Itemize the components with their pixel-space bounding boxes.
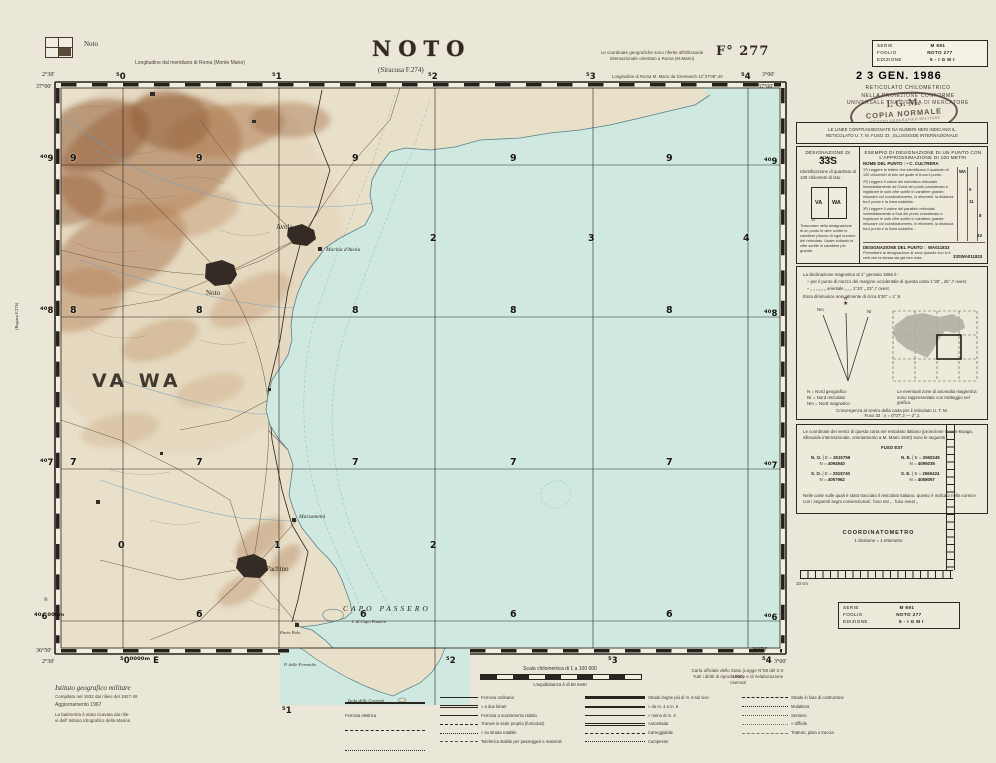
grid-bottom-0: ⁵0⁰⁰⁰⁰ᵐ E <box>120 656 159 666</box>
edge-top-left-lon: 2°30' <box>42 72 54 78</box>
credit-compilato: Compilato nel 1932 dai rilievi del 1927-… <box>55 694 205 700</box>
sheet-subtitle: (Siracusa F.274) <box>378 66 424 74</box>
grid-number: 8 <box>352 305 359 316</box>
railway-symbol-3 <box>345 750 425 751</box>
edge-bottom-left-lon: 2°30' <box>42 659 54 665</box>
corner-no: N. O. { E = 2515759 N = 4094940 <box>811 455 850 466</box>
convergenza-2: Fuso 33 : γ = 0°07',2 — 2°,1 <box>803 413 981 419</box>
ruler-10cm-label: 10 cm <box>796 581 808 587</box>
map-sheet: Noto NOTO (Siracusa F.274) Longitudine d… <box>0 0 996 763</box>
sheet-title: NOTO <box>372 36 471 61</box>
designation-divider <box>859 147 860 263</box>
zona-footnote: Trascurare nella designazione di un punt… <box>800 223 856 253</box>
grid-left-9: ⁴⁰9 <box>40 154 53 164</box>
legend-n: N = Nord geografico <box>807 389 846 395</box>
nm-label: Nm <box>817 307 824 313</box>
grid-top-3: ⁵3 <box>586 72 596 82</box>
edge-top-right-lon: 3°00' <box>762 72 774 78</box>
scale-equidistance: L'equidistanza è di 50 metri <box>480 682 640 687</box>
fuso-est: FUSO EST <box>797 445 987 451</box>
declination-box: La declinazione magnetica al 1° gennaio … <box>796 266 988 420</box>
corner-se: S. E. { E = 2560424 N = 4058057 <box>901 471 939 482</box>
grid-left-8: ⁴⁰8 <box>40 306 53 316</box>
edge-n-label: N <box>44 598 48 603</box>
edizione-value: 5 - I G M I <box>930 57 955 64</box>
grid-left-6: ⁴⁰6⁰⁰⁰ᵐ <box>34 612 64 622</box>
legend-sentieri: Strade in fase di costruzione Mulattiera… <box>742 694 892 738</box>
sheet-index-diagram <box>45 37 73 58</box>
credits-block: Istituto geografico militare Compilato n… <box>55 684 205 723</box>
label-marzamemi: Marzamemi <box>299 514 325 520</box>
val-0: 0 <box>969 187 971 193</box>
legend-railway-block: Ferrovia elettrica Limiti di Stato \u00b… <box>345 694 431 763</box>
edizione-label: EDIZIONE <box>877 57 902 64</box>
coordinatometro-sub: 1 divisione = 1 ettometro <box>796 538 961 544</box>
serie-value: M 691 <box>931 43 946 50</box>
grid-number: 6 <box>196 609 203 620</box>
grid-number: 9 <box>666 153 673 164</box>
credit-istituto: Istituto geografico militare <box>55 684 205 692</box>
square-wa: WA <box>832 200 841 207</box>
label-noto: Noto <box>206 289 220 297</box>
label-avola: Avola <box>276 223 293 231</box>
grid-number: 0 <box>118 540 125 551</box>
n-star: ★ <box>843 301 848 309</box>
val-8: 8 <box>979 213 981 219</box>
meridian-note: Longitudine dal meridiano di Roma (Monte… <box>135 60 245 66</box>
grid-number: 6 <box>510 609 517 620</box>
val-11: 11 <box>969 199 974 205</box>
legend-nr: Nr = Nord reticolato <box>807 395 845 401</box>
grid-right-9: ⁴⁰9 <box>764 157 777 167</box>
label-marina-davola: Marina d'Avola <box>326 247 360 253</box>
coordinates-box: Le coordinate dei vertici di questa cart… <box>796 424 988 514</box>
grid-number: 9 <box>196 153 203 164</box>
step-3: 3ª) Leggere il valore del parallelo reti… <box>863 207 955 232</box>
label-porto-palo: Porto Palo <box>280 630 300 635</box>
foglio-label: FOGLIO <box>877 50 897 57</box>
grid-number: 7 <box>510 457 517 468</box>
edge-ragusa-ref: (Ragusa F.276) <box>14 303 19 330</box>
step-2: 2ª) Leggere il valore del meridiano reti… <box>863 180 955 205</box>
grid-square-letters: VA WA <box>92 370 182 392</box>
grid-number: 9 <box>510 153 517 164</box>
foglio-value: NOTO 277 <box>927 50 952 57</box>
edge-bottom-right-lat: 36°50' <box>752 647 767 653</box>
step-1: 1ª) Leggere le lettere che identificano … <box>863 168 955 178</box>
grid-number: 9 <box>70 153 77 164</box>
declination-line4: Essa diminuisce annualmente di circa 6'3… <box>803 294 981 300</box>
railway-symbol-2 <box>345 730 425 731</box>
corner-so: S. O. { E = 2515740 N = 4057962 <box>811 471 850 482</box>
anomaly-note: Le eventuali zone di anomalia magnetica … <box>897 389 977 406</box>
grid-number: 7 <box>70 457 77 468</box>
scale-bar <box>480 674 642 680</box>
grid-number: 2 <box>430 540 437 551</box>
series-box-top: SERIEM 691 FOGLIONOTO 277 EDIZIONE5 - I … <box>872 40 988 67</box>
utm-note-box: LE LINEE CONTRASSEGNATE DA NUMERI NERI I… <box>796 122 988 144</box>
grid-top-2: ⁵2 <box>428 72 438 82</box>
nome-punto: NOME DEL PUNTO : • C. CULTRERA <box>863 161 983 167</box>
coordinatometro-title: COORDINATOMETRO <box>796 530 961 536</box>
label-pachino: Pachino <box>266 565 289 573</box>
credit-aggiornamento: Aggiornamento 1967 <box>55 702 205 708</box>
grid-number: 7 <box>352 457 359 468</box>
legend-strade: Strade larghe più di m. 6 sul vivo » da … <box>585 694 725 747</box>
sheet-number: F° 277 <box>716 44 769 59</box>
label-formiche: P. delle Formiche <box>284 662 316 667</box>
esempio-col-rules <box>957 167 958 241</box>
zona-value: 33S <box>799 156 857 167</box>
legend-nm: Nm = Nord magnetico <box>807 401 850 407</box>
series-box-bottom: SERIEM 691 FOGLIONOTO 277 EDIZIONE5 - I … <box>838 602 960 629</box>
utm-note-2: RETICOLATO U. T. M. FUSO 33 , ELLISSOIDE… <box>797 133 987 139</box>
grid-bottom-1: ⁵1 <box>282 706 292 716</box>
grid-bottom-3: ⁵3 <box>608 656 618 666</box>
grid-number: 2 <box>430 233 437 244</box>
greenwich-note: Longitudine di Roma M. Mario da Greenwic… <box>612 74 723 79</box>
grid-right-8: ⁴⁰8 <box>764 309 777 319</box>
legend-ferrovia-elettrica: Ferrovia elettrica <box>345 712 431 721</box>
coord-note-2: internazionale orientato a Roma (M.Mario… <box>597 56 707 62</box>
credit-batimetria-2: vi dell' Istituto Idrografico della Mari… <box>55 718 205 724</box>
grid-left-7: ⁴⁰7 <box>40 458 53 468</box>
label-capo-passero: CAPO PASSERO <box>343 604 431 613</box>
esempio-header: ESEMPIO DI DESIGNAZIONE DI UN PUNTO CON … <box>863 150 983 160</box>
esempio-col-rules3 <box>977 167 978 241</box>
grid-top-4: ⁵4 <box>741 72 751 82</box>
declination-line3: – „ „ „ „ „ „ orientale „ „ „ 1°20' „ 23… <box>807 286 985 292</box>
grid-number: 8 <box>70 305 77 316</box>
grid-number: 8 <box>510 305 517 316</box>
north-arrows-diagram <box>813 305 883 385</box>
val-33: 33 <box>977 233 982 239</box>
square-note: Identificazione di quadrato di 100 chilo… <box>800 169 856 180</box>
railway-symbol <box>345 702 425 704</box>
index-label: Noto <box>84 40 98 48</box>
edge-top-right-lat: 37°00' <box>758 84 773 90</box>
grid-number: 7 <box>666 457 673 468</box>
grid-top-1: ⁵1 <box>272 72 282 82</box>
label-isola-capo-passero: I. di Capo Passero <box>352 619 386 624</box>
grid-square-diagram: VA WA 10 <box>811 187 847 219</box>
designazione-punto: DESIGNAZIONE DEL PUNTO : WA011833 <box>863 242 985 251</box>
scale-title: Scala chilometrica di 1 a 100 000 <box>480 666 640 672</box>
grid-number: 7 <box>196 457 203 468</box>
edge-bottom-left-lat: 36°50' <box>36 648 51 654</box>
serie-label: SERIE <box>877 43 893 50</box>
nr-label: Nr <box>867 309 872 315</box>
declination-line2: – per il punto di mezzo del margine occi… <box>807 279 985 285</box>
square-va: VA <box>815 200 822 207</box>
grid-number: 6 <box>666 609 673 620</box>
grid-right-7: ⁴⁰7 <box>764 461 777 471</box>
grid-number: 8 <box>666 305 673 316</box>
coord-note-1: Le coordinate geografiche sono riferite … <box>597 50 707 56</box>
grid-number: 1 <box>274 540 281 551</box>
grid-number: 3 <box>588 233 595 244</box>
index-current-sheet <box>59 48 71 56</box>
carta-ufficiale-2: Tutti i diritti di riproduzione e di rie… <box>688 674 788 685</box>
premettere-value: 33SWA011833 <box>953 254 982 260</box>
grid-number: 8 <box>196 305 203 316</box>
legend-ferrovie: Ferrovia ordinaria » a due binari Ferrov… <box>440 694 570 747</box>
n-label: N <box>844 296 847 302</box>
designation-box: DESIGNAZIONE DI ZONA : 33S Identificazio… <box>796 146 988 264</box>
coordinatometro-horizontal-ruler <box>800 570 953 579</box>
premettere-note: Premettere la designazione di zona quand… <box>863 251 951 261</box>
grid-bottom-4: ⁵4 <box>762 656 772 666</box>
coordinatometro-vertical-ruler <box>946 424 955 570</box>
grid-number: 4 <box>743 233 750 244</box>
val-wa: WA <box>959 169 966 175</box>
grid-bottom-2: ⁵2 <box>446 656 456 666</box>
declination-line1: La declinazione magnetica al 1° gennaio … <box>803 272 981 278</box>
edge-bottom-right-lon: 3°00' <box>774 659 786 665</box>
grid-right-6: ⁴⁰6 <box>764 613 777 623</box>
esempio-col-rules2 <box>967 167 968 241</box>
edge-top-left-lat: 37°00' <box>36 84 51 90</box>
grid-top-0: ⁵0 <box>116 72 126 82</box>
corner-ne: N. E. { E = 2560249 N = 4095035 <box>901 455 940 466</box>
sicily-index-diagram <box>889 305 981 387</box>
date-stamp: 2 3 GEN. 1986 <box>856 70 942 82</box>
grid-number: 9 <box>352 153 359 164</box>
